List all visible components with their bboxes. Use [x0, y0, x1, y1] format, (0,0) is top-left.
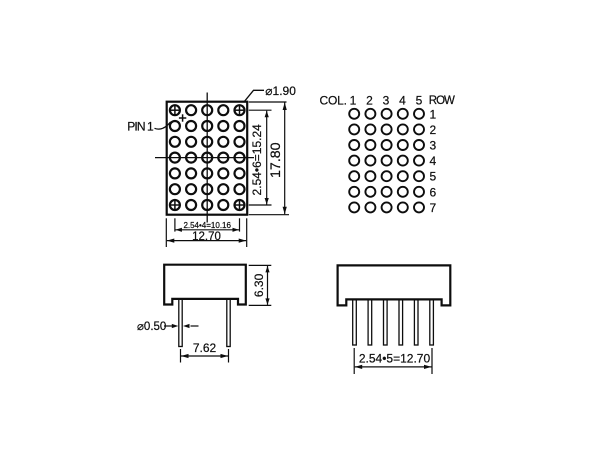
- svg-text:2: 2: [429, 123, 436, 137]
- svg-text:5: 5: [416, 94, 423, 108]
- svg-text:7.62: 7.62: [193, 341, 217, 355]
- svg-text:2.54•6=15.24: 2.54•6=15.24: [250, 124, 264, 196]
- svg-text:7: 7: [429, 201, 436, 215]
- svg-text:ROW: ROW: [429, 95, 455, 107]
- svg-text:⌀0.50: ⌀0.50: [137, 321, 166, 333]
- svg-text:6.30: 6.30: [252, 273, 266, 297]
- svg-text:3: 3: [383, 94, 390, 108]
- svg-text:3: 3: [429, 139, 436, 153]
- svg-text:5: 5: [429, 170, 436, 184]
- svg-text:17.80: 17.80: [268, 142, 284, 178]
- svg-text:6: 6: [429, 185, 436, 199]
- svg-text:1: 1: [429, 107, 436, 121]
- svg-text:2.54•4=10.16: 2.54•4=10.16: [183, 221, 231, 230]
- svg-text:⌀1.90: ⌀1.90: [265, 84, 296, 98]
- svg-text:4: 4: [399, 94, 406, 108]
- svg-text:2: 2: [366, 94, 373, 108]
- svg-text:COL.: COL.: [320, 94, 347, 108]
- svg-text:2.54•5=12.70: 2.54•5=12.70: [359, 351, 431, 365]
- svg-text:PIN 1: PIN 1: [127, 119, 154, 133]
- svg-text:4: 4: [429, 154, 436, 168]
- svg-text:12.70: 12.70: [192, 231, 221, 243]
- svg-text:1: 1: [350, 94, 357, 108]
